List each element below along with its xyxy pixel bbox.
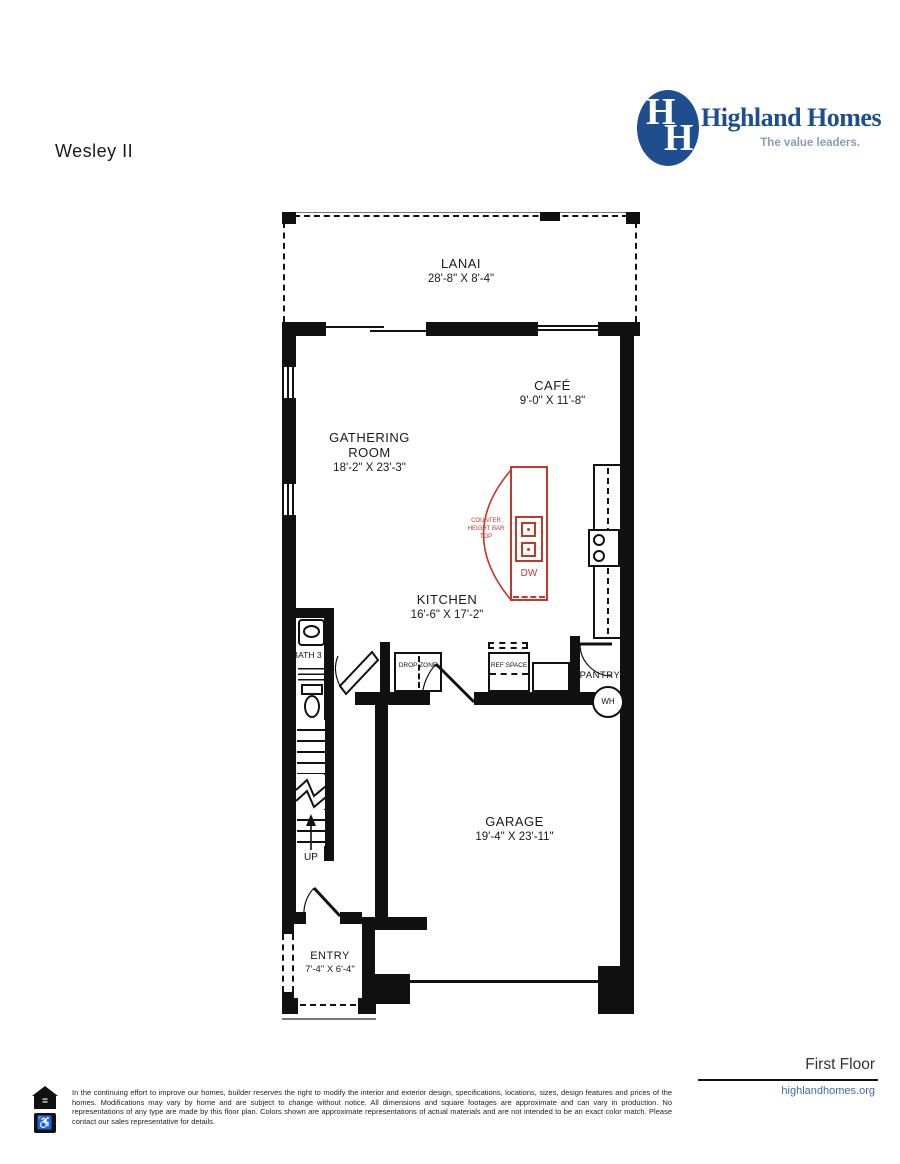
garage-door-post bbox=[375, 974, 410, 1004]
range-burner bbox=[593, 550, 605, 562]
range-burner bbox=[593, 534, 605, 546]
window-left-2 bbox=[282, 484, 296, 515]
ref-space-divider bbox=[490, 673, 528, 675]
lanai-screen-left bbox=[283, 222, 285, 322]
room-label-cafe: CAFÉ 9'-0" X 11'-8" bbox=[485, 378, 620, 407]
overhead-cabinet-dashed bbox=[488, 642, 528, 649]
island-dashed-edge bbox=[513, 596, 545, 598]
front-door-opening bbox=[298, 998, 358, 1014]
room-label-kitchen: KITCHEN 16'-6" X 17'-2" bbox=[382, 592, 512, 621]
lanai-screen-top bbox=[294, 215, 628, 217]
equal-housing-body: = bbox=[34, 1096, 56, 1109]
gathering-dims: 18'-2" X 23'-3" bbox=[312, 462, 427, 474]
entry-top-wall bbox=[340, 912, 362, 924]
water-heater: WH bbox=[592, 686, 624, 718]
ref-space-label: REF SPACE bbox=[489, 660, 529, 672]
disclaimer-text: In the continuing effort to improve our … bbox=[72, 1088, 672, 1126]
toilet-bowl bbox=[304, 695, 320, 718]
kitchen-garage-wall bbox=[355, 692, 632, 705]
entry-door-panel bbox=[314, 888, 340, 916]
dishwasher-label: DW bbox=[512, 568, 546, 579]
lanai-roof-line bbox=[282, 212, 640, 213]
sink-drain bbox=[527, 548, 530, 551]
garage-left-wall bbox=[375, 692, 388, 929]
stair-treads bbox=[297, 810, 325, 846]
garage-door-opening bbox=[430, 692, 474, 705]
drop-zone-divider bbox=[418, 656, 420, 688]
wall-right bbox=[620, 322, 634, 1014]
stair-break-line bbox=[296, 791, 326, 807]
floor-plan: BATH 3 UP DW COUNTER HEIGHT BAR TOP DROP… bbox=[282, 212, 640, 1022]
highland-homes-logo-icon: H H bbox=[637, 90, 699, 166]
counter-cabinet bbox=[532, 662, 570, 692]
floor-label: First Floor bbox=[675, 1056, 875, 1074]
sink-drain bbox=[527, 528, 530, 531]
lanai-dims: 28'-8" X 8'-4" bbox=[391, 273, 531, 285]
equal-housing-icon: = bbox=[32, 1086, 58, 1110]
garage-overhead-door bbox=[410, 980, 600, 983]
gathering-name: GATHERING ROOM bbox=[312, 430, 427, 460]
lanai-name: LANAI bbox=[391, 256, 531, 271]
website-link[interactable]: highlandhomes.org bbox=[675, 1085, 875, 1097]
garage-name: GARAGE bbox=[447, 814, 582, 829]
stair-treads bbox=[297, 720, 325, 774]
footer-rule bbox=[698, 1079, 878, 1081]
bath3-label: BATH 3 bbox=[283, 650, 331, 660]
page-title: Wesley II bbox=[55, 141, 133, 162]
entry-step-line bbox=[282, 1018, 376, 1020]
pantry-wall bbox=[570, 636, 580, 694]
room-label-entry: ENTRY 7'-4" X 6'-4" bbox=[292, 950, 368, 975]
brand-tagline: The value leaders. bbox=[662, 137, 860, 149]
sliding-door-panel bbox=[326, 326, 384, 328]
room-label-lanai: LANAI 28'-8" X 8'-4" bbox=[391, 256, 531, 285]
bath-stair-divider-wall bbox=[324, 608, 334, 861]
range bbox=[588, 529, 620, 567]
kitchen-name: KITCHEN bbox=[382, 592, 512, 607]
garage-door-post bbox=[598, 966, 634, 1014]
window-left-1 bbox=[282, 367, 296, 398]
toilet-tank bbox=[301, 684, 323, 695]
stair-break-line bbox=[296, 780, 326, 796]
wall-left bbox=[282, 322, 296, 914]
ref-space-box bbox=[488, 652, 530, 692]
garage-jog-wall bbox=[375, 917, 427, 930]
brand-name: Highland Homes bbox=[701, 103, 881, 133]
cafe-window-line bbox=[538, 325, 598, 327]
lanai-post bbox=[626, 212, 640, 224]
pantry-label: PANTRY bbox=[572, 670, 628, 681]
bath-sink-basin bbox=[303, 625, 320, 638]
cafe-name: CAFÉ bbox=[485, 378, 620, 393]
room-label-garage: GARAGE 19'-4" X 23'-11" bbox=[447, 814, 582, 843]
sliding-door bbox=[326, 322, 426, 336]
cafe-window-line bbox=[538, 329, 598, 331]
water-heater-label: WH bbox=[594, 688, 622, 716]
equal-housing-roof bbox=[32, 1086, 58, 1096]
stair-break-mask bbox=[296, 775, 325, 809]
room-label-gathering: GATHERING ROOM 18'-2" X 23'-3" bbox=[312, 430, 427, 474]
front-door-dashed bbox=[300, 1004, 356, 1006]
accessibility-icon: ♿ bbox=[34, 1113, 56, 1133]
hall-door-panel bbox=[340, 652, 378, 694]
drop-zone-label: DROP ZONE bbox=[395, 662, 441, 670]
stairs-up-label: UP bbox=[296, 852, 326, 863]
cafe-dims: 9'-0" X 11'-8" bbox=[485, 395, 620, 407]
garage-dims: 19'-4" X 23'-11" bbox=[447, 831, 582, 843]
sliding-door-panel bbox=[370, 330, 428, 332]
bath-tub bbox=[298, 664, 324, 681]
door-jamb-wall bbox=[380, 642, 390, 692]
hall-door-arc bbox=[335, 656, 340, 686]
entry-name: ENTRY bbox=[292, 950, 368, 962]
entry-dims: 7'-4" X 6'-4" bbox=[292, 964, 368, 975]
kitchen-dims: 16'-6" X 17'-2" bbox=[382, 609, 512, 621]
counter-bar-label: COUNTER HEIGHT BAR TOP bbox=[464, 518, 508, 541]
lanai-post bbox=[540, 212, 560, 221]
lanai-screen-right bbox=[635, 222, 637, 322]
